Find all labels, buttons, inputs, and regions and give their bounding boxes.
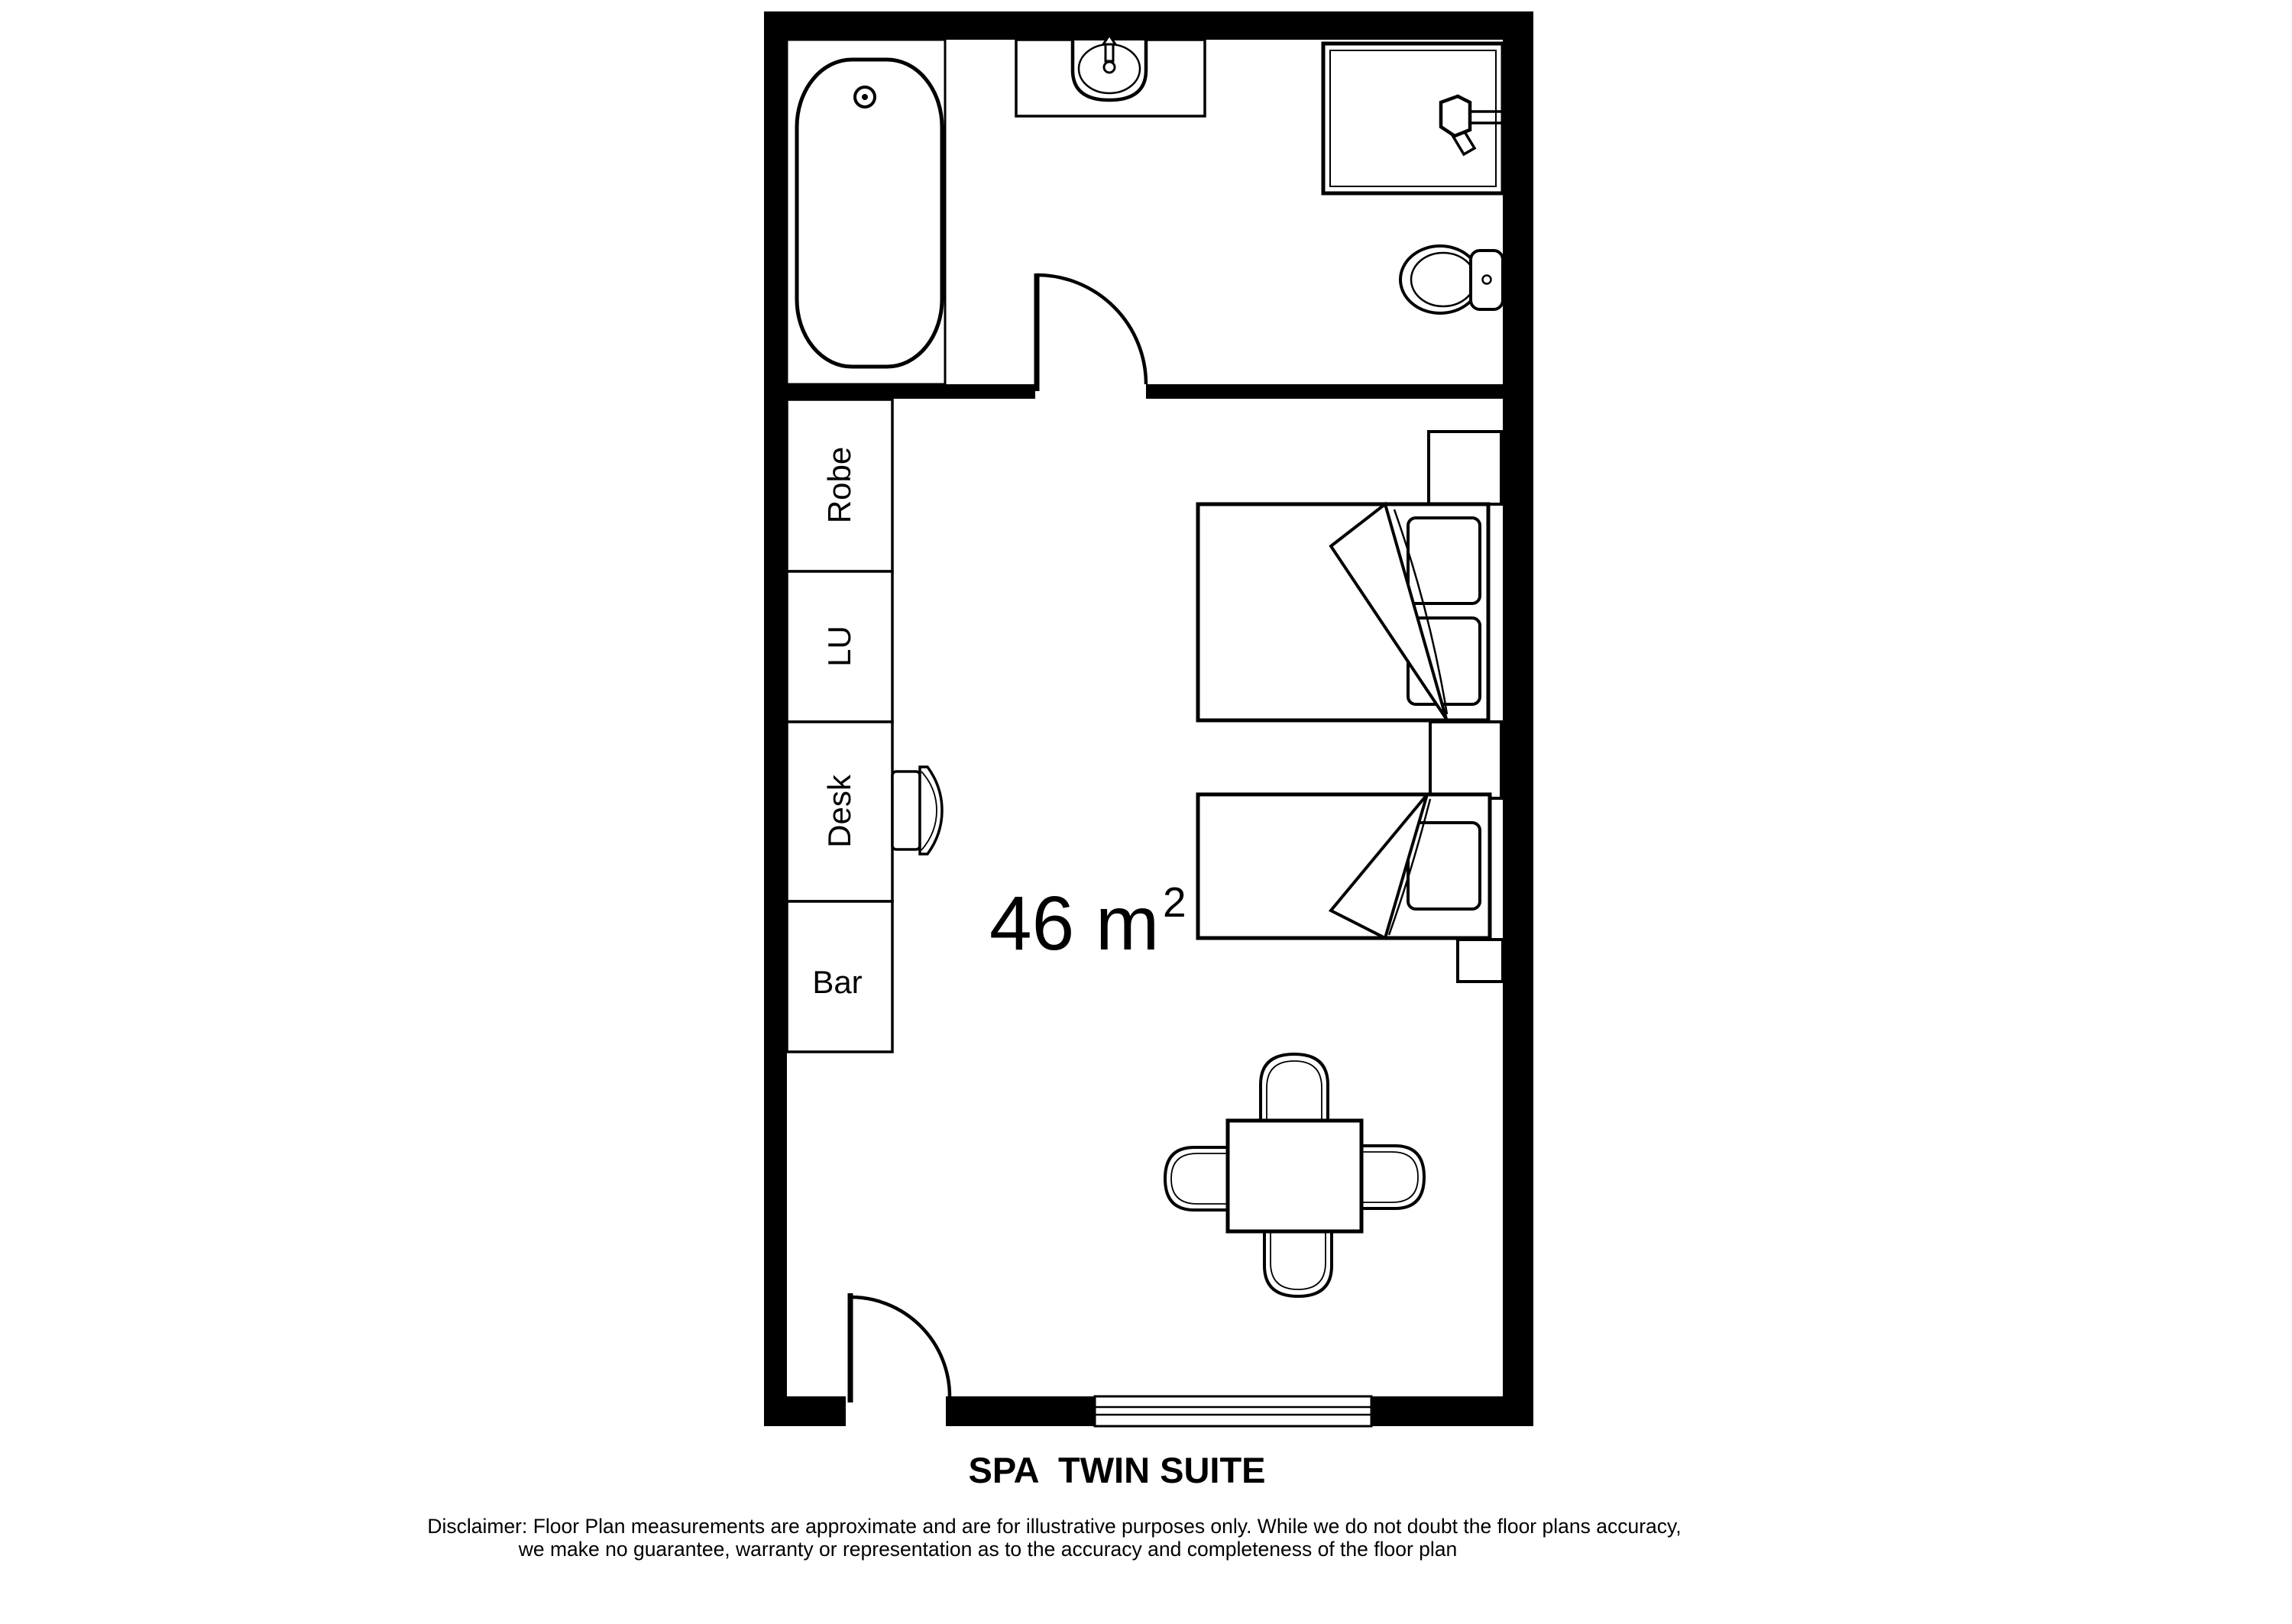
bottom-wall-right-segment [1371, 1396, 1533, 1426]
top-wall [764, 11, 1533, 40]
robe-label: Robe [821, 447, 857, 523]
shower-head-icon [1441, 96, 1470, 136]
bottom-wall-left-segment [764, 1396, 846, 1426]
nightstand-bottom [1458, 940, 1503, 982]
nightstand-top [1429, 432, 1501, 504]
right-wall [1503, 11, 1533, 1426]
bathroom-door [1037, 273, 1146, 391]
desk-chair-seat [892, 772, 920, 849]
left-wall [764, 11, 787, 1426]
desk-chair-back [920, 767, 942, 854]
bathtub-drain-dot [862, 94, 868, 100]
area-label: 46 m [989, 881, 1159, 966]
entry-door [850, 1293, 950, 1402]
luggage-label: LU [821, 626, 857, 667]
single-bed-icon [1198, 794, 1490, 938]
floor-plan-svg: Robe LU Desk Bar 46 m 2 SPA TWIN SUITE D… [0, 0, 2292, 1624]
nightstand-middle [1430, 722, 1501, 798]
plan-title: SPA TWIN SUITE [968, 1450, 1265, 1490]
dining-chair-top [1261, 1054, 1328, 1121]
toilet-icon [1400, 246, 1503, 313]
dining-chair-bottom [1264, 1231, 1332, 1296]
faucet-stem [1106, 44, 1113, 61]
dining-chair-right [1361, 1146, 1424, 1208]
shower-icon [1323, 44, 1503, 193]
window [1095, 1396, 1371, 1426]
disclaimer-line-1: Disclaimer: Floor Plan measurements are … [427, 1515, 1681, 1538]
toilet-flush-button [1483, 276, 1491, 284]
dining-set [1165, 1054, 1424, 1296]
bottom-wall-mid-segment [946, 1396, 1095, 1426]
floor-plan-page: Robe LU Desk Bar 46 m 2 SPA TWIN SUITE D… [0, 0, 2292, 1624]
bathroom-divider-wall-right [1146, 384, 1503, 399]
entry-door-swing-arc [850, 1297, 950, 1396]
toilet-bowl [1400, 246, 1480, 313]
disclaimer-line-2: we make no guarantee, warranty or repres… [518, 1538, 1458, 1561]
bathroom [787, 35, 1503, 391]
dining-table [1228, 1121, 1361, 1231]
faucet-spout [1104, 62, 1115, 73]
desk-chair-icon [892, 767, 942, 854]
area-label-exponent: 2 [1163, 878, 1186, 926]
bathroom-divider-wall-left [785, 384, 1035, 399]
bar-label: Bar [812, 964, 862, 1000]
bathroom-door-swing-arc [1037, 275, 1146, 384]
window-frame [1095, 1396, 1371, 1426]
dining-chair-left [1165, 1147, 1228, 1210]
double-bed-icon [1198, 504, 1488, 720]
plan-texts: Robe LU Desk Bar 46 m 2 SPA TWIN SUITE D… [427, 447, 1681, 1561]
desk-label: Desk [821, 774, 857, 848]
